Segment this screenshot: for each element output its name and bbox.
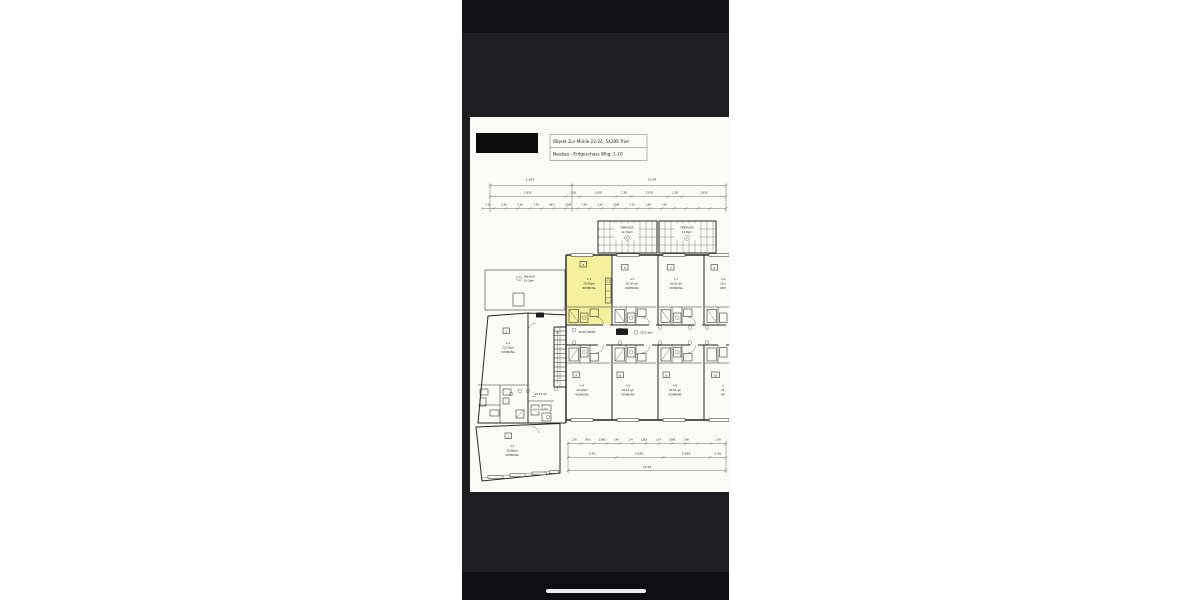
svg-text:A: A bbox=[722, 384, 724, 388]
svg-text:1.48: 1.48 bbox=[645, 204, 651, 207]
svg-text:A 5: A 5 bbox=[630, 277, 635, 281]
svg-text:WO: WO bbox=[721, 393, 725, 396]
svg-text:WOHNUNG: WOHNUNG bbox=[505, 454, 518, 457]
svg-text:1.885: 1.885 bbox=[565, 204, 572, 207]
svg-text:19.42qm: 19.42qm bbox=[583, 281, 595, 285]
svg-text:TERRASSE: TERRASSE bbox=[680, 226, 694, 230]
title-block: Objekt Zur Mühle 22-24, 54295 Trier Neub… bbox=[550, 135, 647, 161]
stairwell bbox=[554, 327, 566, 387]
bottom-bar bbox=[462, 572, 729, 600]
svg-text:1.14: 1.14 bbox=[655, 438, 661, 441]
svg-text:3.635: 3.635 bbox=[646, 191, 654, 195]
svg-text:18.2 qm: 18.2 qm bbox=[640, 331, 653, 335]
svg-text:20.52 qm: 20.52 qm bbox=[535, 392, 548, 396]
svg-text:1.885: 1.885 bbox=[669, 438, 676, 441]
statusbar-area bbox=[462, 0, 729, 33]
svg-text:1.885: 1.885 bbox=[641, 438, 648, 441]
svg-text:88.5: 88.5 bbox=[549, 204, 555, 207]
svg-text:1.26: 1.26 bbox=[672, 191, 678, 195]
terrace-left: TERRASSE 12.79qm 5 bbox=[598, 221, 657, 253]
svg-text:WOHNUNG: WOHNUNG bbox=[575, 393, 588, 396]
svg-text:12.8qm: 12.8qm bbox=[682, 230, 692, 234]
utility-rooms bbox=[480, 323, 551, 433]
svg-text:A 1: A 1 bbox=[510, 444, 515, 448]
svg-text:18.2: 18.2 bbox=[720, 281, 726, 285]
svg-text:A 9: A 9 bbox=[721, 277, 726, 281]
apartment-a3-highlight bbox=[567, 256, 612, 325]
unit-6-number: 6 bbox=[619, 373, 621, 377]
svg-text:1.76: 1.76 bbox=[533, 204, 539, 207]
svg-text:3.635: 3.635 bbox=[595, 191, 603, 195]
dimension-chain-top: 5.815 15.99 5.815 1.26 3.635 1.26 3.635 … bbox=[481, 178, 728, 213]
svg-text:2.26: 2.26 bbox=[501, 204, 507, 207]
svg-text:2.26: 2.26 bbox=[517, 204, 523, 207]
svg-text:1.26: 1.26 bbox=[570, 191, 576, 195]
svg-text:A 6: A 6 bbox=[626, 384, 631, 388]
svg-text:1.26: 1.26 bbox=[621, 191, 627, 195]
svg-text:1.14: 1.14 bbox=[629, 204, 635, 207]
svg-text:3.76: 3.76 bbox=[589, 452, 596, 456]
svg-text:±0.00 OKFFB: ±0.00 OKFFB bbox=[532, 409, 548, 412]
svg-text:18.2qm: 18.2qm bbox=[524, 279, 534, 283]
svg-text:A 2: A 2 bbox=[506, 341, 511, 345]
unit-9-number: 9 bbox=[713, 266, 715, 270]
svg-text:3.635: 3.635 bbox=[635, 452, 644, 456]
svg-text:12.79qm: 12.79qm bbox=[621, 230, 633, 234]
svg-text:2: 2 bbox=[518, 277, 520, 280]
svg-text:28.96qm: 28.96qm bbox=[506, 448, 518, 452]
svg-text:1.48: 1.48 bbox=[683, 438, 689, 441]
home-indicator[interactable] bbox=[546, 589, 646, 594]
svg-text:1.885: 1.885 bbox=[599, 438, 606, 441]
terrace-right: TERRASSE 12.8qm 7 bbox=[659, 221, 716, 253]
dimension-chain-bottom: 1.76 88.5 1.885 1.48 1.14 1.885 1.14 1.8… bbox=[567, 438, 728, 473]
svg-text:A 4: A 4 bbox=[580, 384, 585, 388]
svg-text:23.22qm: 23.22qm bbox=[502, 345, 514, 349]
balcony: 2 BALKON 18.2qm bbox=[485, 270, 565, 310]
svg-text:18.92 qm: 18.92 qm bbox=[670, 281, 683, 285]
svg-text:1.14: 1.14 bbox=[597, 204, 603, 207]
svg-text:WOH: WOH bbox=[720, 287, 726, 290]
svg-text:19.42qm: 19.42qm bbox=[576, 388, 588, 392]
svg-text:23.: 23. bbox=[721, 388, 725, 392]
unit-4-number: 4 bbox=[575, 373, 577, 377]
svg-text:18.92 qm: 18.92 qm bbox=[626, 281, 639, 285]
svg-text:15.99: 15.99 bbox=[648, 178, 657, 182]
svg-text:3.635: 3.635 bbox=[700, 191, 708, 195]
svg-text:1.48: 1.48 bbox=[613, 438, 619, 441]
unit-5-number: 5 bbox=[624, 266, 626, 270]
unit-8-number: 8 bbox=[665, 373, 667, 377]
svg-text:TERRASSE: TERRASSE bbox=[620, 226, 634, 230]
svg-text:A 3: A 3 bbox=[587, 277, 592, 281]
unit-7-number: 7 bbox=[670, 266, 672, 270]
unit-labels: 1 A 1 28.96qm WOHNUNG 2 A 2 23.22qm WOHN… bbox=[501, 262, 726, 457]
svg-text:18.92 qm: 18.92 qm bbox=[622, 388, 635, 392]
svg-text:1.48: 1.48 bbox=[581, 204, 587, 207]
svg-text:WOHNUNG: WOHNUNG bbox=[621, 393, 634, 396]
svg-text:5.815: 5.815 bbox=[524, 191, 532, 195]
plan-annotations: ±0.00 OKFFB 18.2 qm 20.52 qm ±0.00 OKFFB bbox=[532, 330, 653, 412]
svg-text:BALKON: BALKON bbox=[524, 275, 535, 279]
unit-3-number: 3 bbox=[582, 263, 584, 267]
svg-text:±0.00 OKFFB: ±0.00 OKFFB bbox=[578, 330, 595, 334]
svg-text:1.40: 1.40 bbox=[661, 204, 667, 207]
svg-text:1.14: 1.14 bbox=[627, 438, 633, 441]
svg-text:1.40: 1.40 bbox=[715, 438, 721, 441]
svg-text:WOHNUNG: WOHNUNG bbox=[668, 393, 681, 396]
title-line-2: Neubau - Erdgeschoss Whg. 1-10 bbox=[553, 152, 623, 157]
floorplan-photo[interactable]: Objekt Zur Mühle 22-24, 54295 Trier Neub… bbox=[470, 117, 729, 492]
svg-text:88.5: 88.5 bbox=[585, 438, 591, 441]
unit-2-number: 2 bbox=[505, 329, 507, 333]
svg-text:3.635: 3.635 bbox=[682, 452, 691, 456]
unit-10-number: 10 bbox=[714, 373, 718, 377]
svg-text:5.815: 5.815 bbox=[526, 178, 535, 182]
svg-text:1.15: 1.15 bbox=[485, 204, 491, 207]
svg-text:1.76: 1.76 bbox=[571, 438, 577, 441]
unit-1-number: 1 bbox=[507, 434, 509, 438]
svg-text:WOHNUNG: WOHNUNG bbox=[582, 287, 595, 290]
svg-text:15.99: 15.99 bbox=[643, 465, 652, 469]
svg-text:WOHNUNG: WOHNUNG bbox=[501, 351, 514, 354]
svg-text:A 7: A 7 bbox=[674, 277, 679, 281]
svg-text:WOHNUNG: WOHNUNG bbox=[625, 287, 638, 290]
svg-text:1.885: 1.885 bbox=[613, 204, 620, 207]
floorplan-drawing: Objekt Zur Mühle 22-24, 54295 Trier Neub… bbox=[470, 117, 729, 492]
svg-text:1.40: 1.40 bbox=[715, 452, 722, 456]
title-line-1: Objekt Zur Mühle 22-24, 54295 Trier bbox=[553, 139, 630, 144]
bath-pods-bottom-row bbox=[567, 345, 729, 363]
redaction-bar bbox=[476, 133, 538, 153]
svg-text:WOHNUNG: WOHNUNG bbox=[669, 287, 682, 290]
svg-text:18.92 qm: 18.92 qm bbox=[669, 388, 682, 392]
svg-text:A 8: A 8 bbox=[673, 384, 678, 388]
